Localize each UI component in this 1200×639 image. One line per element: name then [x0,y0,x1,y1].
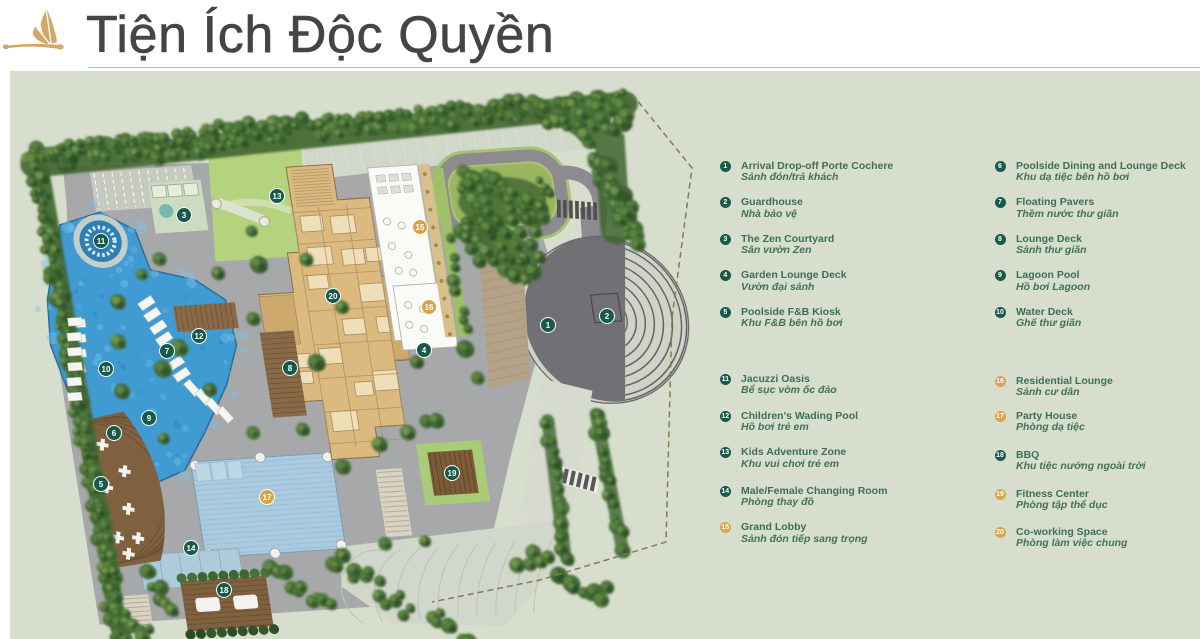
svg-text:16: 16 [425,303,434,312]
svg-text:20: 20 [329,292,338,301]
svg-text:8: 8 [288,364,293,373]
svg-text:19: 19 [448,469,457,478]
svg-text:6: 6 [112,429,117,438]
svg-text:12: 12 [195,332,204,341]
svg-text:10: 10 [102,365,111,374]
svg-text:14: 14 [187,544,196,553]
svg-text:13: 13 [273,192,282,201]
svg-text:18: 18 [220,586,229,595]
svg-text:11: 11 [97,237,106,246]
svg-text:17: 17 [263,493,272,502]
svg-text:7: 7 [165,347,170,356]
svg-text:3: 3 [182,211,187,220]
svg-text:5: 5 [99,480,104,489]
svg-text:2: 2 [605,312,610,321]
svg-text:1: 1 [546,321,551,330]
svg-text:9: 9 [147,414,152,423]
svg-text:4: 4 [422,346,427,355]
svg-text:15: 15 [416,223,425,232]
